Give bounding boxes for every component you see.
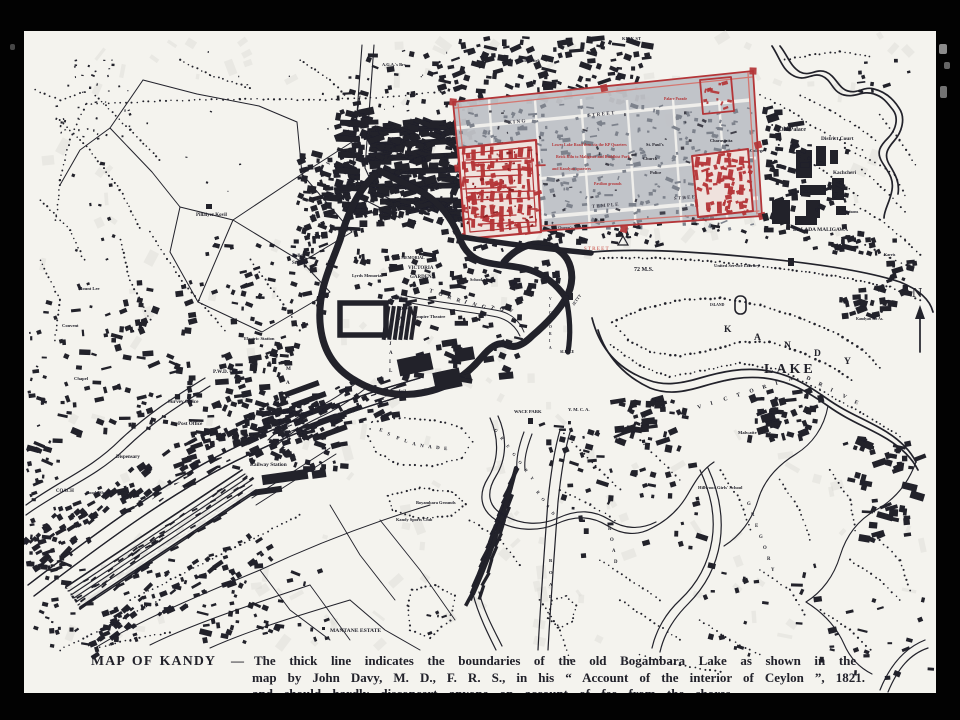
svg-text:A: A xyxy=(754,333,761,343)
svg-text:Survey Office: Survey Office xyxy=(168,399,199,405)
svg-text:A: A xyxy=(286,380,290,386)
svg-text:Goods Sheds: Goods Sheds xyxy=(86,490,110,495)
svg-text:A: A xyxy=(549,346,552,350)
svg-text:Y. M. C. A.: Y. M. C. A. xyxy=(568,407,590,412)
svg-text:K: K xyxy=(286,408,290,414)
svg-text:—: — xyxy=(230,653,245,668)
svg-text:I: I xyxy=(389,360,391,365)
svg-text:A: A xyxy=(399,316,403,322)
svg-text:Y: Y xyxy=(844,357,851,367)
svg-text:O: O xyxy=(610,538,614,543)
svg-text:School: School xyxy=(470,277,483,282)
svg-text:E: E xyxy=(755,524,758,529)
svg-text:R: R xyxy=(549,332,552,336)
svg-text:District Court: District Court xyxy=(821,136,854,142)
svg-text:M: M xyxy=(286,366,291,372)
svg-text:Church: Church xyxy=(643,156,658,161)
svg-text:V: V xyxy=(549,297,552,301)
svg-text:Kandyan Art As.: Kandyan Art As. xyxy=(856,317,883,321)
svg-text:Convent: Convent xyxy=(62,323,79,328)
svg-text:MAP OF KANDY: MAP OF KANDY xyxy=(91,653,216,668)
svg-text:N: N xyxy=(912,286,922,301)
svg-text:SLUICE: SLUICE xyxy=(560,350,575,354)
svg-text:R: R xyxy=(608,527,612,532)
svg-text:L: L xyxy=(432,155,436,161)
svg-text:and Kandyan quarters: and Kandyan quarters xyxy=(552,166,591,171)
svg-text:O: O xyxy=(549,325,552,329)
svg-text:72 M.S.: 72 M.S. xyxy=(634,267,654,273)
svg-text:G: G xyxy=(747,502,751,507)
svg-text:Pillaiyer Kovil: Pillaiyer Kovil xyxy=(196,213,227,218)
svg-text:Dispensary: Dispensary xyxy=(116,455,140,460)
svg-text:Lower Lake Road then via the K: Lower Lake Road then via the KP Quarters xyxy=(552,142,627,147)
svg-text:P.W.D. Office: P.W.D. Office xyxy=(213,369,244,375)
svg-text:Karris: Karris xyxy=(884,252,896,257)
svg-text:O: O xyxy=(549,570,553,575)
svg-text:COACH: COACH xyxy=(56,489,74,494)
svg-text:Post Office: Post Office xyxy=(178,421,203,427)
svg-text:Brick Kiln to Maligawa and Bud: Brick Kiln to Maligawa and Buddhist Park xyxy=(556,154,631,159)
svg-text:ISLAND: ISLAND xyxy=(710,303,725,307)
svg-text:O: O xyxy=(763,546,767,551)
svg-text:K: K xyxy=(724,325,732,335)
svg-text:Lyrds Memorial: Lyrds Memorial xyxy=(352,273,383,278)
svg-text:D: D xyxy=(614,560,618,565)
svg-text:A: A xyxy=(612,549,616,554)
svg-text:Chapel: Chapel xyxy=(74,376,89,381)
svg-text:Kachcheri: Kachcheri xyxy=(833,170,857,176)
svg-text:Prisons: Prisons xyxy=(845,209,859,214)
svg-text:Empire Theatre: Empire Theatre xyxy=(414,314,445,319)
svg-text:O: O xyxy=(421,157,426,163)
svg-text:Y: Y xyxy=(771,568,775,573)
svg-text:Scots Kirk: Scots Kirk xyxy=(520,58,540,63)
svg-text:C: C xyxy=(410,159,414,165)
svg-text:D: D xyxy=(399,326,403,332)
svg-text:DALADA MALIGAWA: DALADA MALIGAWA xyxy=(793,227,848,233)
svg-text:Palace Parade: Palace Parade xyxy=(664,97,687,101)
svg-text:Railway Station: Railway Station xyxy=(250,462,287,468)
svg-text:Boyambara Grounds: Boyambara Grounds xyxy=(416,500,456,505)
svg-text:Jail: Jail xyxy=(398,389,407,395)
svg-text:Old Palace: Old Palace xyxy=(779,127,806,133)
svg-text:R: R xyxy=(399,296,403,302)
svg-text:R: R xyxy=(751,513,755,518)
svg-text:A: A xyxy=(389,351,393,356)
svg-text:The thick line indicates the b: The thick line indicates the boundaries … xyxy=(254,653,856,668)
svg-text:St. Paul's: St. Paul's xyxy=(646,142,664,147)
svg-text:Mount Lee: Mount Lee xyxy=(78,286,100,291)
svg-text:map by John Davy, M. D., F. R: map by John Davy, M. D., F. R. S., in hi… xyxy=(252,670,865,685)
svg-text:KIRK ST: KIRK ST xyxy=(622,36,641,41)
svg-text:Charawatta: Charawatta xyxy=(710,138,733,143)
svg-text:G: G xyxy=(759,535,763,540)
svg-text:United Service Library: United Service Library xyxy=(714,263,760,268)
svg-text:Pavilion grounds: Pavilion grounds xyxy=(594,182,622,186)
svg-text:R: R xyxy=(286,394,290,400)
svg-text:O: O xyxy=(399,306,403,312)
svg-text:C: C xyxy=(549,311,552,315)
svg-text:D: D xyxy=(814,349,821,359)
svg-text:MANTANE ESTATE: MANTANE ESTATE xyxy=(330,628,381,634)
svg-text:O: O xyxy=(443,153,448,159)
svg-text:A.G.A.'s Brs.: A.G.A.'s Brs. xyxy=(382,62,407,67)
svg-text:WACE PARK: WACE PARK xyxy=(514,409,542,414)
svg-text:Police: Police xyxy=(650,170,661,175)
svg-text:R: R xyxy=(767,557,771,562)
svg-text:N: N xyxy=(784,341,791,351)
svg-text:Hillwood Girls' School: Hillwood Girls' School xyxy=(698,485,743,490)
